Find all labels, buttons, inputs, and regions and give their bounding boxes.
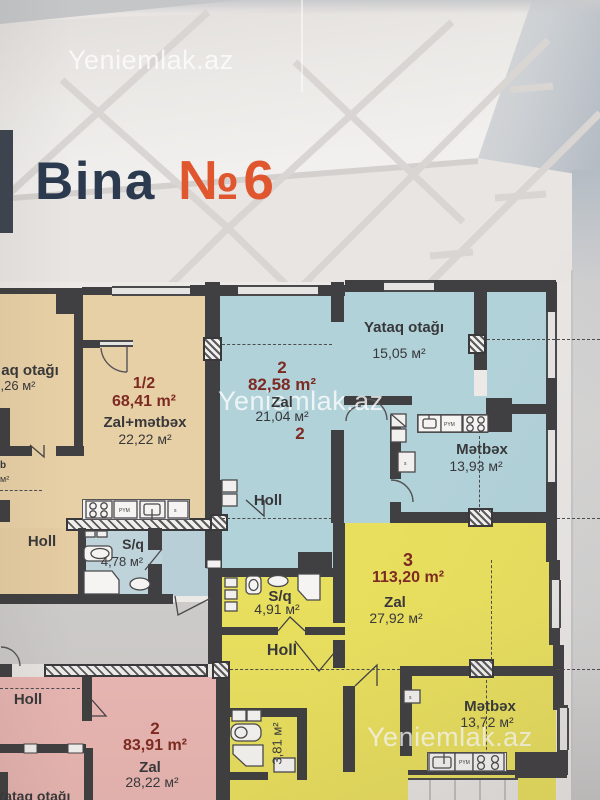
svg-text:PYM: PYM [459,760,470,766]
svg-text:PYM: PYM [119,508,130,514]
svg-text:PYM: PYM [444,422,455,428]
